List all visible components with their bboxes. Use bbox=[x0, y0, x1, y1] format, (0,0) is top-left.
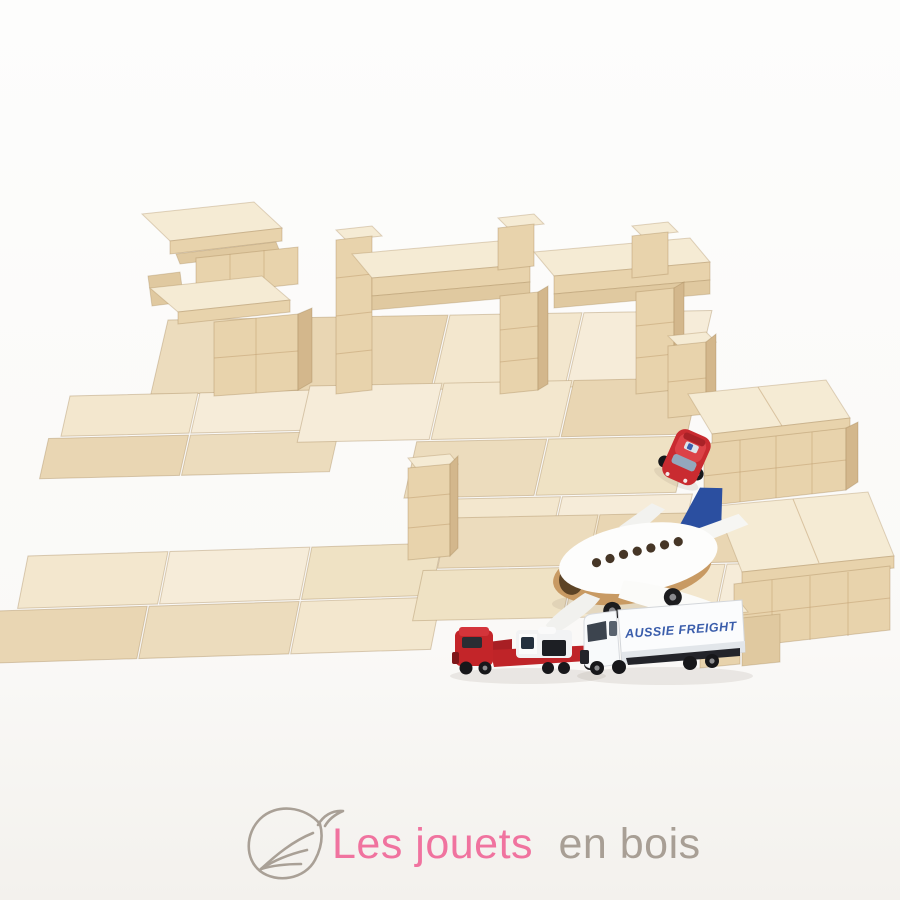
raised-platform-upper-right bbox=[688, 380, 858, 506]
bridge-pillar-middle bbox=[498, 224, 534, 270]
brand-logo-text: Les jouets en bois bbox=[332, 820, 701, 868]
product-photo: AUSSIE FREIGHT Les jouets en bois bbox=[0, 0, 900, 900]
toy-freight-truck: AUSSIE FREIGHT bbox=[577, 600, 753, 685]
block-wall bbox=[408, 454, 458, 560]
blocks-airport-scene: AUSSIE FREIGHT Les jouets en bois bbox=[0, 0, 900, 900]
brand-logo-text-secondary: en bois bbox=[558, 820, 700, 868]
flatbed-load-machine bbox=[516, 627, 572, 658]
brand-logo-text-primary: Les jouets bbox=[332, 820, 533, 868]
bridge-pillar-right bbox=[632, 232, 668, 278]
